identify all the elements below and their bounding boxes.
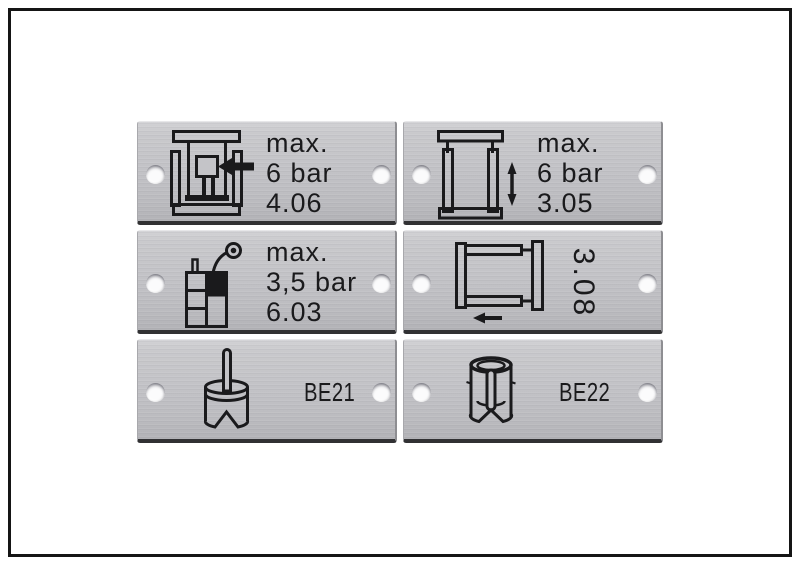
mounting-hole xyxy=(638,165,657,184)
press-ram-arrow-icon xyxy=(170,128,258,218)
clamp-vertical-arrow-icon xyxy=(437,129,519,221)
plate-text: max. 6 bar 4.06 xyxy=(266,128,333,218)
label-plate-3-08: 3.08 xyxy=(403,230,663,334)
lubricator-gauge-icon xyxy=(182,239,246,331)
mounting-hole xyxy=(412,274,431,293)
plate-text: max. 6 bar 3.05 xyxy=(537,128,604,218)
label-plate-6-03: max. 3,5 bar 6.03 xyxy=(137,230,397,334)
mounting-hole xyxy=(146,165,165,184)
plate-text-line: 6.03 xyxy=(266,297,357,327)
mounting-hole xyxy=(372,165,391,184)
cylinder-pin-vblock-icon xyxy=(202,347,252,435)
clamp-horizontal-arrow-icon xyxy=(454,240,546,324)
plate-code-label: BE22 xyxy=(559,378,610,406)
cylinder-sleeve-cutaway-icon xyxy=(465,352,517,436)
mounting-hole xyxy=(412,383,431,402)
plate-text-line: max. xyxy=(266,128,333,158)
mounting-hole xyxy=(146,383,165,402)
label-plate-be22: BE22 xyxy=(403,339,663,443)
plate-text-line: max. xyxy=(537,128,604,158)
label-plate-3-05: max. 6 bar 3.05 xyxy=(403,121,663,225)
plate-code-label: BE21 xyxy=(304,378,355,406)
mounting-hole xyxy=(638,383,657,402)
plate-text-line: 6 bar xyxy=(537,158,604,188)
plate-text-line: max. xyxy=(266,237,357,267)
mounting-hole xyxy=(638,274,657,293)
plate-text-line: 6 bar xyxy=(266,158,333,188)
mounting-hole xyxy=(372,274,391,293)
plate-text-line: 3.05 xyxy=(537,188,604,218)
label-plate-4-06: max. 6 bar 4.06 xyxy=(137,121,397,225)
mounting-hole xyxy=(412,165,431,184)
plate-text-line: 3,5 bar xyxy=(266,267,357,297)
mounting-hole xyxy=(372,383,391,402)
label-plate-be21: BE21 xyxy=(137,339,397,443)
photo-frame xyxy=(8,8,792,557)
plate-text: max. 3,5 bar 6.03 xyxy=(266,237,357,327)
mounting-hole xyxy=(146,274,165,293)
plate-rotated-label: 3.08 xyxy=(566,248,600,318)
plate-text-line: 4.06 xyxy=(266,188,333,218)
